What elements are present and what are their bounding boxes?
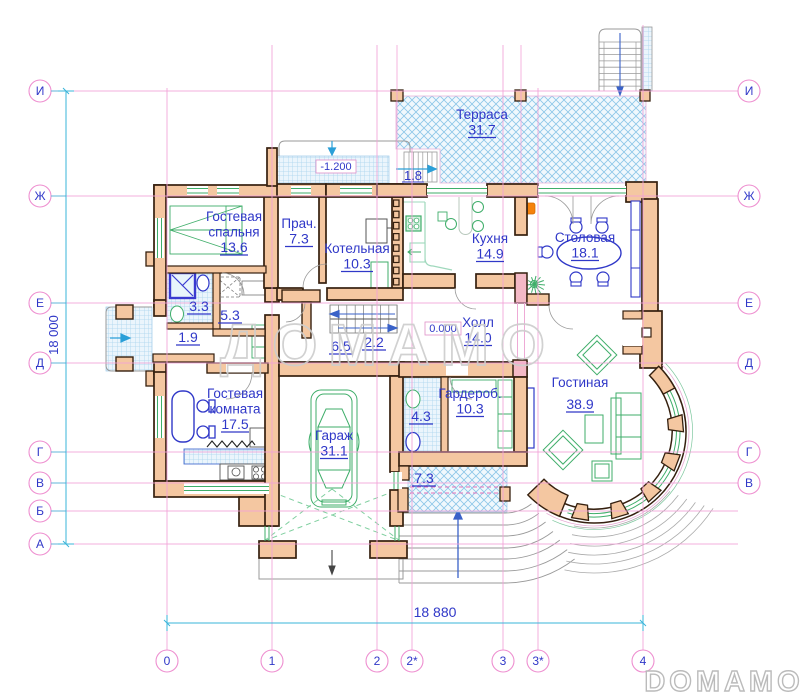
- svg-text:комната: комната: [209, 402, 261, 417]
- svg-text:Терраса: Терраса: [456, 107, 508, 122]
- svg-text:Е: Е: [745, 296, 753, 310]
- svg-text:Кухня: Кухня: [472, 231, 508, 246]
- svg-text:Д: Д: [745, 356, 753, 370]
- svg-text:Гостевая: Гостевая: [207, 386, 263, 401]
- svg-text:Гардероб.: Гардероб.: [438, 386, 501, 401]
- svg-text:17.5: 17.5: [221, 416, 248, 432]
- svg-text:18 000: 18 000: [46, 315, 61, 355]
- svg-text:31.1: 31.1: [320, 443, 347, 459]
- svg-text:18.1: 18.1: [571, 245, 598, 261]
- svg-text:1: 1: [269, 654, 276, 668]
- svg-text:13.6: 13.6: [220, 239, 247, 255]
- svg-text:3*: 3*: [532, 654, 544, 668]
- svg-text:А: А: [36, 537, 44, 551]
- svg-text:10.3: 10.3: [343, 256, 370, 272]
- svg-text:Гостевая: Гостевая: [206, 209, 262, 224]
- svg-text:4.3: 4.3: [411, 408, 431, 424]
- svg-text:И: И: [36, 84, 45, 98]
- svg-text:3.3: 3.3: [189, 298, 209, 314]
- svg-text:спальня: спальня: [208, 225, 259, 240]
- svg-text:7.3: 7.3: [289, 231, 309, 247]
- svg-text:1.9: 1.9: [178, 329, 198, 345]
- svg-text:Б: Б: [36, 504, 44, 518]
- svg-text:Г: Г: [746, 445, 753, 459]
- svg-text:3: 3: [500, 654, 507, 668]
- svg-text:Прач.: Прач.: [281, 216, 316, 231]
- svg-text:1.8: 1.8: [404, 168, 422, 183]
- svg-text:Столовая: Столовая: [555, 230, 615, 245]
- svg-text:В: В: [36, 476, 44, 490]
- svg-text:0: 0: [164, 654, 171, 668]
- svg-text:Ж: Ж: [743, 189, 754, 203]
- svg-text:Котельная: Котельная: [324, 241, 389, 256]
- svg-text:Ж: Ж: [34, 189, 45, 203]
- svg-text:И: И: [745, 84, 754, 98]
- svg-text:Гостиная: Гостиная: [552, 375, 609, 390]
- svg-text:38.9: 38.9: [566, 396, 593, 412]
- svg-text:31.7: 31.7: [468, 122, 495, 138]
- svg-text:ДОМАМО: ДОМАМО: [220, 313, 556, 378]
- svg-text:DOMAMO: DOMAMO: [644, 666, 800, 698]
- svg-text:Г: Г: [37, 445, 44, 459]
- svg-text:2: 2: [374, 654, 381, 668]
- svg-text:Д: Д: [36, 356, 44, 370]
- svg-text:7.3: 7.3: [414, 470, 434, 486]
- svg-text:-1.200: -1.200: [320, 161, 351, 173]
- svg-text:10.3: 10.3: [456, 401, 483, 417]
- svg-text:Е: Е: [36, 296, 44, 310]
- svg-text:18 880: 18 880: [414, 604, 457, 620]
- svg-text:Гараж: Гараж: [315, 428, 353, 443]
- svg-text:2*: 2*: [406, 654, 418, 668]
- svg-text:В: В: [745, 476, 753, 490]
- svg-text:14.9: 14.9: [476, 246, 503, 262]
